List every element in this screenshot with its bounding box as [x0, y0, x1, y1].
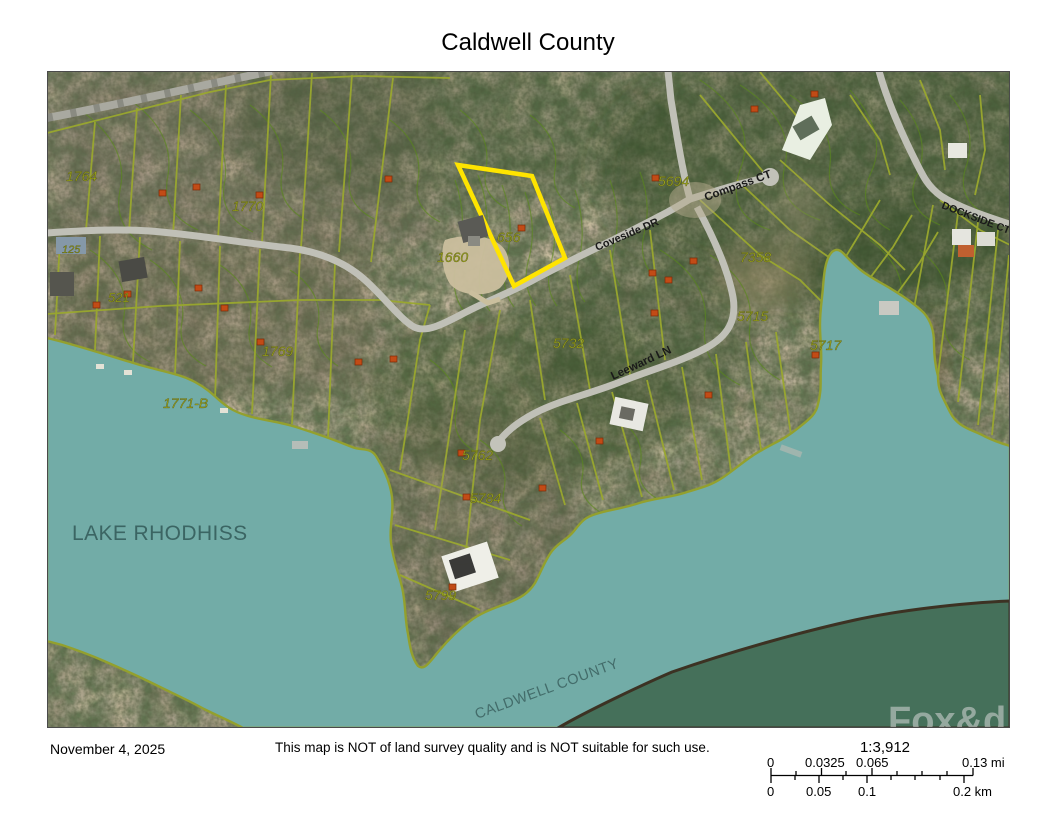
svg-text:5732: 5732	[553, 335, 584, 351]
svg-text:0.2 km: 0.2 km	[953, 784, 992, 799]
svg-text:5784: 5784	[470, 490, 501, 506]
svg-text:Fox&d: Fox&d	[888, 700, 1006, 728]
svg-text:656: 656	[497, 229, 521, 245]
svg-text:5799: 5799	[425, 587, 456, 603]
svg-text:5762: 5762	[462, 447, 493, 463]
svg-text:5715: 5715	[737, 308, 768, 324]
svg-text:0.065: 0.065	[856, 755, 889, 770]
svg-text:5694: 5694	[658, 173, 689, 189]
svg-text:521: 521	[108, 290, 130, 305]
svg-text:1769: 1769	[262, 343, 293, 359]
svg-text:0: 0	[767, 784, 774, 799]
svg-text:125: 125	[62, 244, 81, 256]
svg-text:7358: 7358	[740, 249, 771, 265]
svg-text:LAKE RHODHISS: LAKE RHODHISS	[72, 522, 248, 545]
svg-text:0: 0	[767, 755, 774, 770]
svg-text:0.1: 0.1	[858, 784, 876, 799]
svg-text:1660: 1660	[437, 249, 468, 265]
svg-text:1764: 1764	[66, 168, 97, 184]
svg-text:1770: 1770	[232, 198, 263, 214]
svg-text:5717: 5717	[810, 337, 842, 353]
svg-text:0.05: 0.05	[806, 784, 831, 799]
svg-text:0.13 mi: 0.13 mi	[962, 755, 1005, 770]
svg-text:1771-B: 1771-B	[163, 395, 208, 411]
svg-text:0.0325: 0.0325	[805, 755, 845, 770]
